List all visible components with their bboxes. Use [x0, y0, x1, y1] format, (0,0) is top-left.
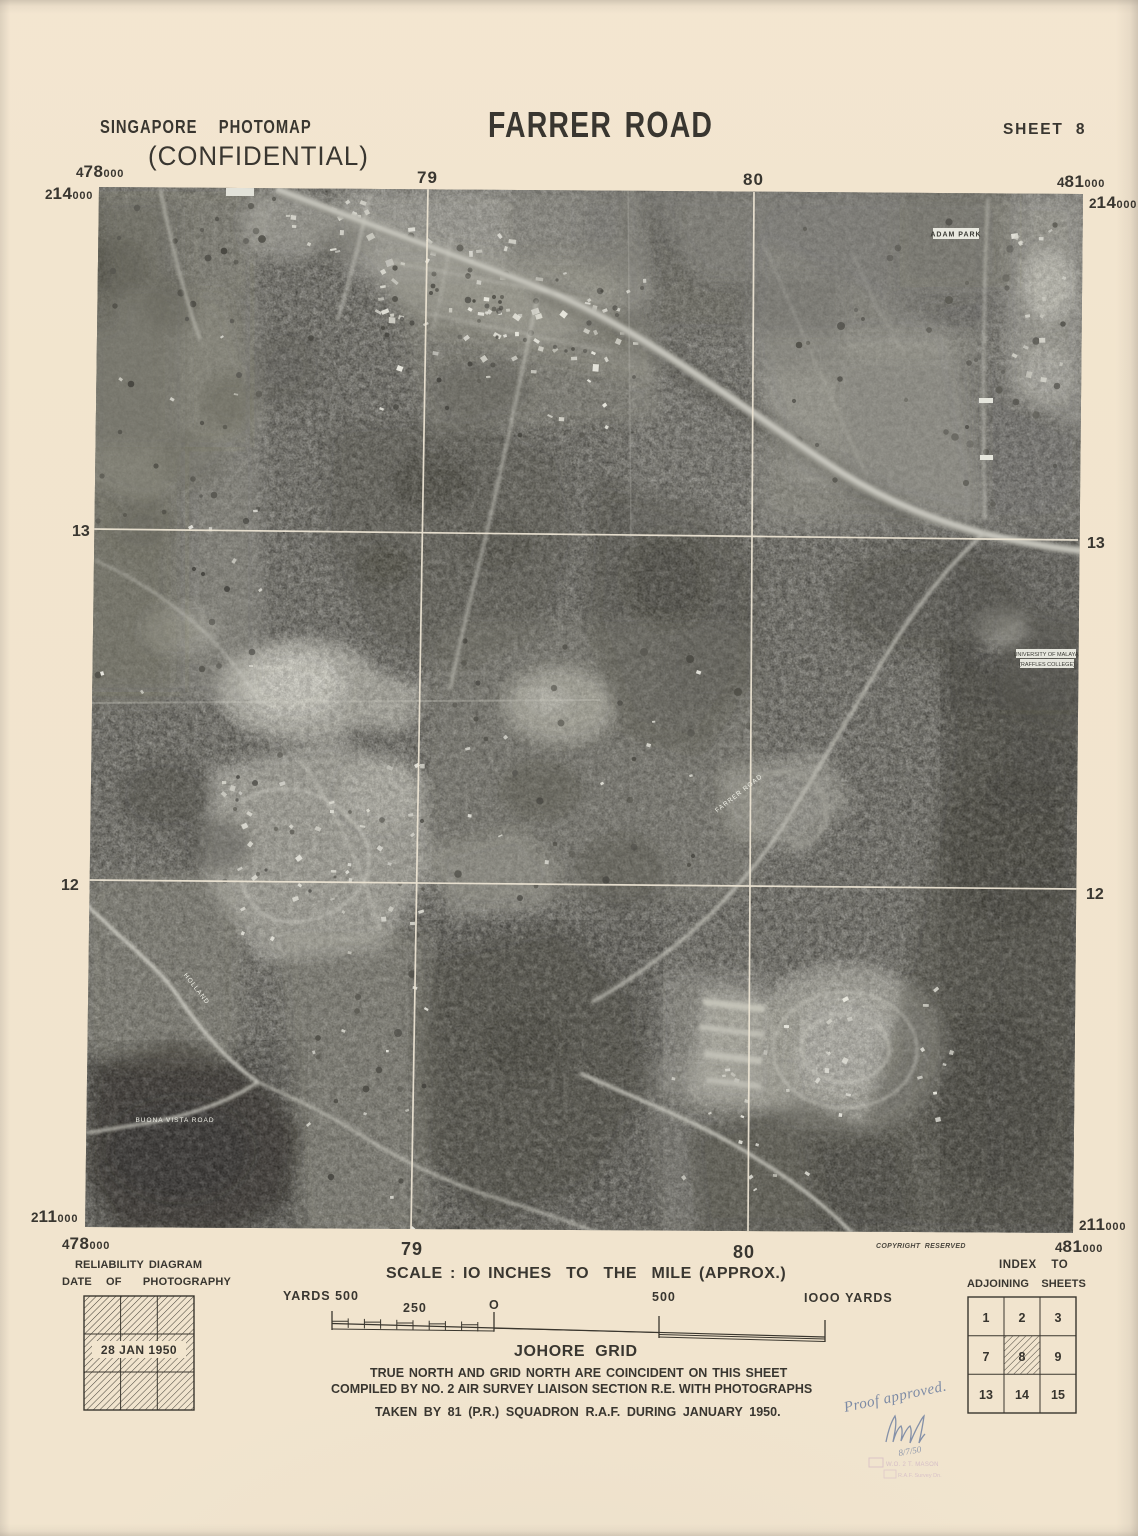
- svg-text:3: 3: [1055, 1311, 1062, 1325]
- svg-text:7: 7: [983, 1350, 990, 1364]
- svg-text:R.A.F. Survey Dn.: R.A.F. Survey Dn.: [898, 1473, 942, 1479]
- svg-text:14: 14: [1015, 1388, 1029, 1402]
- svg-text:13: 13: [979, 1388, 993, 1402]
- svg-text:8: 8: [1019, 1350, 1026, 1364]
- svg-text:W.O. 2 T. MASON: W.O. 2 T. MASON: [886, 1462, 939, 1468]
- svg-text:15: 15: [1051, 1388, 1065, 1402]
- svg-text:9: 9: [1055, 1350, 1062, 1364]
- svg-text:2: 2: [1019, 1311, 1026, 1325]
- svg-text:Proof approved.: Proof approved.: [842, 1378, 949, 1416]
- svg-text:ADAM PARK: ADAM PARK: [930, 232, 981, 239]
- svg-text:8/7/50: 8/7/50: [898, 1444, 923, 1458]
- svg-text:BUONA VISTA ROAD: BUONA VISTA ROAD: [135, 1117, 214, 1124]
- svg-text:28 JAN 1950: 28 JAN 1950: [101, 1343, 177, 1357]
- svg-text:(RAFFLES COLLEGE): (RAFFLES COLLEGE): [1019, 662, 1075, 668]
- svg-text:UNIVERSITY OF MALAYA: UNIVERSITY OF MALAYA: [1013, 652, 1078, 658]
- svg-text:1: 1: [983, 1311, 990, 1325]
